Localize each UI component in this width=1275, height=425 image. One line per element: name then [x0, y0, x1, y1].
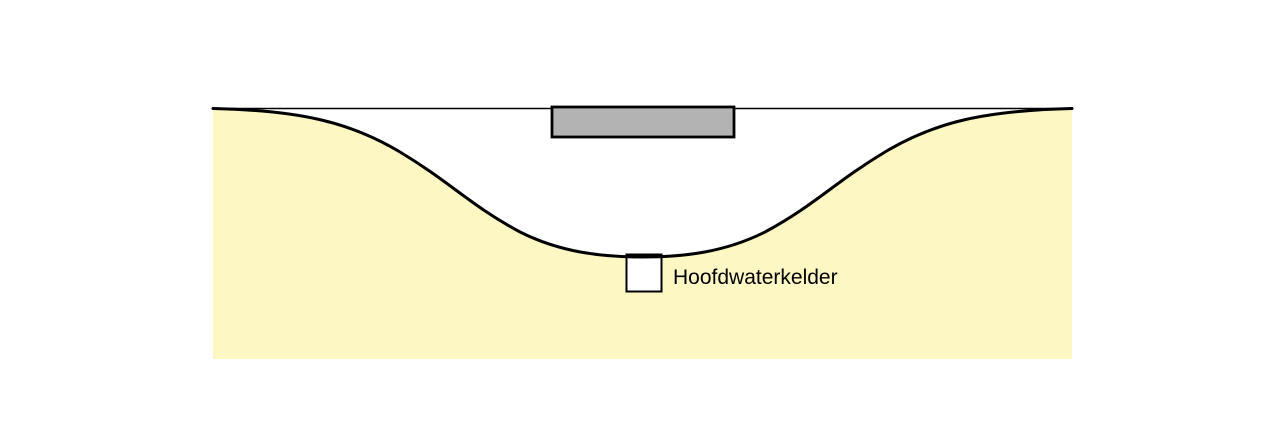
water-cellar-label: Hoofdwaterkelder [673, 266, 838, 289]
diagram-canvas: Hoofdwaterkelder [0, 0, 1275, 425]
ground-fill [213, 109, 1072, 360]
building-structure [552, 107, 734, 137]
water-cellar-square [627, 255, 662, 292]
cross-section-diagram: Hoofdwaterkelder [0, 0, 1275, 425]
